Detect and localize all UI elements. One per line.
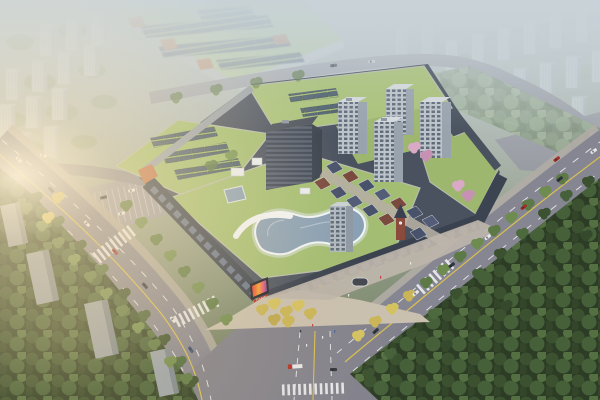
aerial-rendering-canvas: [0, 0, 600, 400]
warm-light-tint: [0, 0, 600, 400]
aerial-rendering: [0, 0, 600, 400]
